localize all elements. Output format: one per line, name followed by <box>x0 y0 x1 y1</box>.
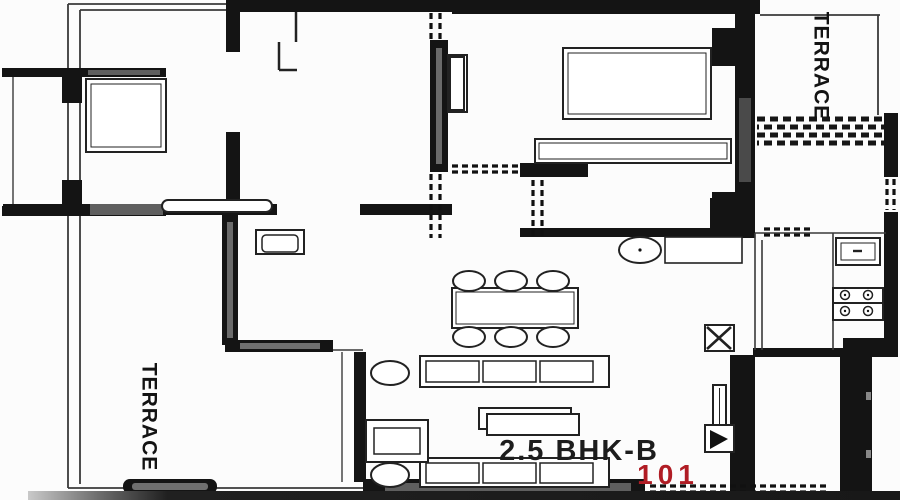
bed-master <box>563 48 711 119</box>
window-sills <box>162 200 272 212</box>
hatch-band <box>757 119 884 143</box>
side-seating <box>366 361 428 487</box>
kitchen-sink <box>836 238 880 265</box>
kitchen-hob <box>833 288 883 320</box>
floor-plan-image: TERRACE TERRACE 2.5 BHK-B 101 <box>0 0 900 500</box>
coffee-table <box>479 408 579 435</box>
terrace-label-bottom-left: TERRACE <box>137 363 160 472</box>
bed-top-left <box>86 79 166 152</box>
wash-basin <box>619 237 742 263</box>
unit-number-label: 101 <box>637 459 699 490</box>
service-shaft <box>705 325 734 351</box>
entry-door <box>705 385 734 452</box>
bottom-border-band <box>28 491 900 500</box>
terrace-label-top-right: TERRACE <box>809 12 832 121</box>
floor-plan: TERRACE TERRACE 2.5 BHK-B 101 <box>0 0 900 500</box>
side-table-master <box>450 57 464 110</box>
sofa-upper <box>420 356 609 387</box>
wall-stub-closet <box>279 12 297 70</box>
wardrobe-master <box>535 139 731 163</box>
dining-table <box>452 288 578 328</box>
unit-type-label: 2.5 BHK-B <box>499 435 659 467</box>
dresser-middle-room <box>256 230 304 254</box>
